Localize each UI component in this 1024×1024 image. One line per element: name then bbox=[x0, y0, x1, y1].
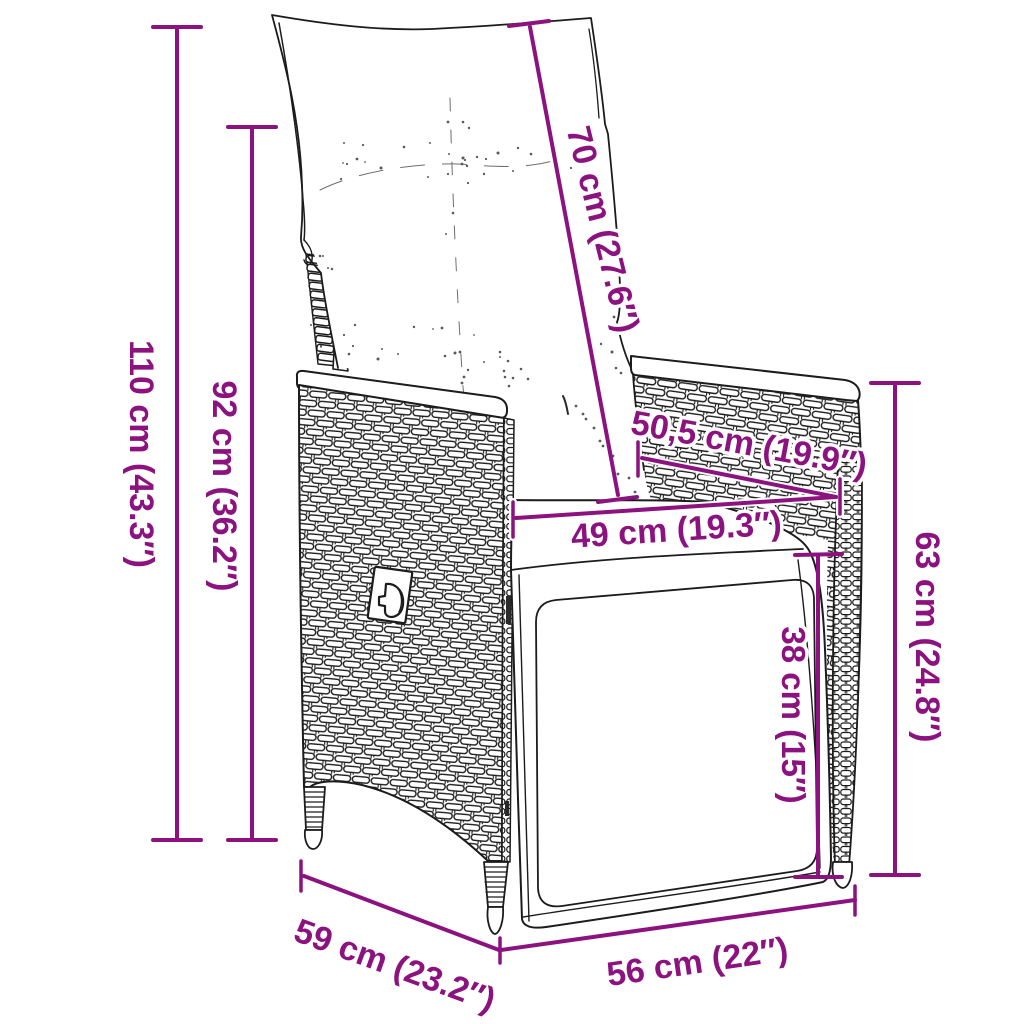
svg-text:92 cm (36.2″): 92 cm (36.2″) bbox=[205, 381, 243, 592]
svg-text:38 cm (15″): 38 cm (15″) bbox=[775, 626, 812, 803]
svg-text:63 cm (24.8″): 63 cm (24.8″) bbox=[908, 532, 946, 743]
svg-text:110 cm (43.3″): 110 cm (43.3″) bbox=[122, 340, 160, 568]
